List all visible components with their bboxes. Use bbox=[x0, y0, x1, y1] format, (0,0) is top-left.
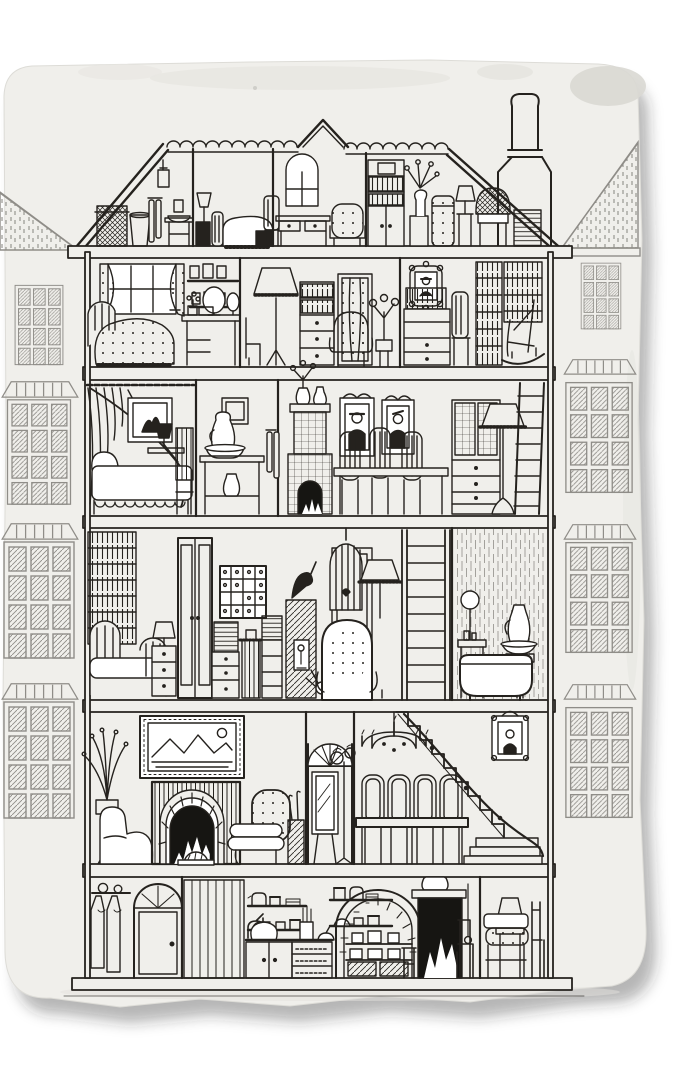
dotted-drum-jar bbox=[432, 196, 454, 246]
tufted-wing-chair bbox=[317, 620, 377, 700]
nightstand-lamp-4f bbox=[152, 622, 176, 696]
wicker-hamper bbox=[95, 206, 129, 246]
crowned-portrait bbox=[492, 712, 529, 761]
hanging-towel bbox=[266, 430, 279, 478]
fringed-black-vase bbox=[240, 630, 262, 698]
portrait-2 bbox=[382, 396, 414, 454]
linen-stack bbox=[514, 210, 541, 246]
attic-cupboard-bookshelf bbox=[368, 160, 404, 246]
bathtub bbox=[460, 655, 532, 700]
fireplace bbox=[152, 782, 240, 865]
bureau-with-books bbox=[404, 288, 450, 365]
neighbor-left-window-1 bbox=[15, 285, 63, 364]
double-doors bbox=[178, 538, 212, 698]
scanned-drawing bbox=[0, 0, 687, 1080]
neighbor-building-right bbox=[558, 142, 640, 817]
book-stack-chest-2 bbox=[262, 616, 282, 698]
bookcase-chest bbox=[300, 282, 334, 365]
black-cooking-stove bbox=[412, 877, 471, 978]
arched-window bbox=[286, 154, 318, 206]
tiled-stove bbox=[288, 404, 332, 514]
bookcase-2 bbox=[504, 262, 542, 322]
print-grid-frame bbox=[220, 566, 266, 618]
book-stack-chest-1 bbox=[212, 622, 239, 698]
landscape-painting bbox=[140, 716, 244, 778]
bookcase-1 bbox=[476, 262, 502, 365]
neighbor-left-window-2 bbox=[2, 382, 78, 504]
neighbor-right-window-1 bbox=[581, 263, 621, 329]
